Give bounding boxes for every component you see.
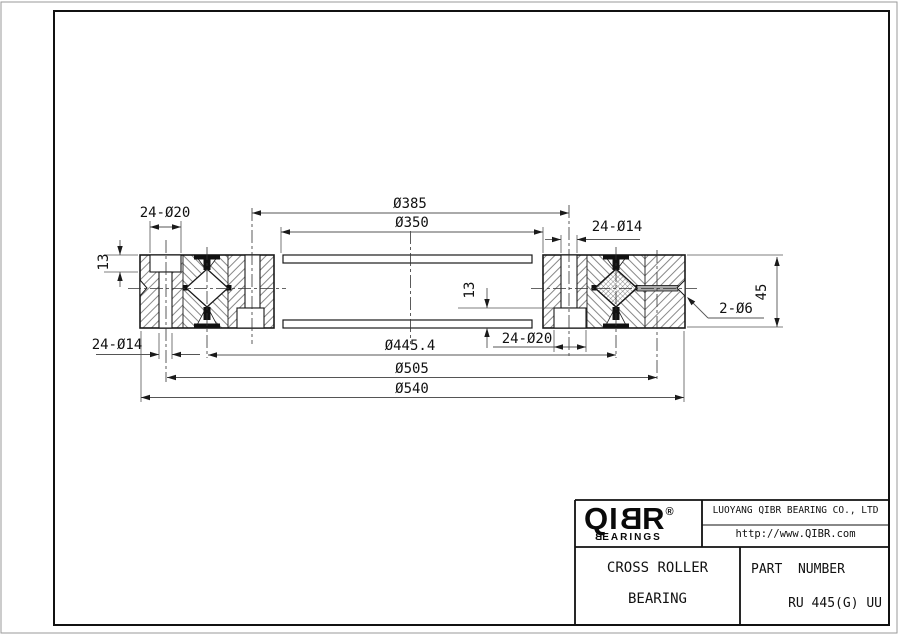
part-number-label: PART NUMBER [751, 562, 845, 577]
dim-outer-dia: Ø540 [395, 381, 429, 397]
logo-letter: R [642, 501, 665, 536]
dim-grease-holes: 2-Ø6 [719, 301, 753, 317]
logo-subtitle-rest: EARINGS [602, 532, 662, 543]
dim-depth-left: 13 [96, 254, 112, 271]
product-title-line1: CROSS ROLLER [575, 560, 740, 576]
drawing-sheet: Ø385 Ø350 24-Ø20 24-Ø14 13 13 24-Ø14 Ø44… [0, 0, 900, 636]
dim-holes-bottom-left: 24-Ø14 [92, 337, 143, 353]
inner-ring-bands [283, 255, 532, 328]
logo-subtitle-letter-mirrored: B [593, 532, 602, 543]
logo-subtitle: BEARINGS [593, 532, 662, 543]
bearing-drawing-svg: Ø385 Ø350 24-Ø20 24-Ø14 13 13 24-Ø14 Ø44… [0, 0, 900, 636]
dim-section-height: 45 [754, 284, 770, 301]
logo-letter-mirrored: B [619, 503, 642, 534]
product-title-line2: BEARING [575, 591, 740, 607]
counterbore-hole-top-left [150, 255, 181, 272]
dim-counterbore-top-left: 24-Ø20 [140, 205, 191, 221]
dim-holes-top-right: 24-Ø14 [592, 219, 643, 235]
company-name: LUOYANG QIBR BEARING CO., LTD [702, 505, 889, 516]
counterbore-hole-bottom-right [554, 308, 586, 328]
dim-ring-dia-inner: Ø350 [395, 215, 429, 231]
company-website: http://www.QIBR.com [702, 528, 889, 540]
dim-roller-pitch: Ø445.4 [385, 338, 436, 354]
bearing-section-right [543, 255, 685, 328]
registered-mark: ® [666, 506, 674, 518]
qibr-logo: QIBR® [584, 503, 674, 534]
dim-counterbore-bottom-right: 24-Ø20 [502, 331, 553, 347]
logo-letter: I [609, 501, 619, 536]
dim-ring-dia-outer: Ø385 [393, 196, 427, 212]
logo-letter: Q [584, 501, 609, 536]
dim-mount-circle: Ø505 [395, 361, 429, 377]
dim-depth-right: 13 [462, 282, 478, 299]
part-number-value: RU 445(G) UU [740, 596, 882, 611]
counterbore-hole-bottom-left [237, 308, 264, 328]
